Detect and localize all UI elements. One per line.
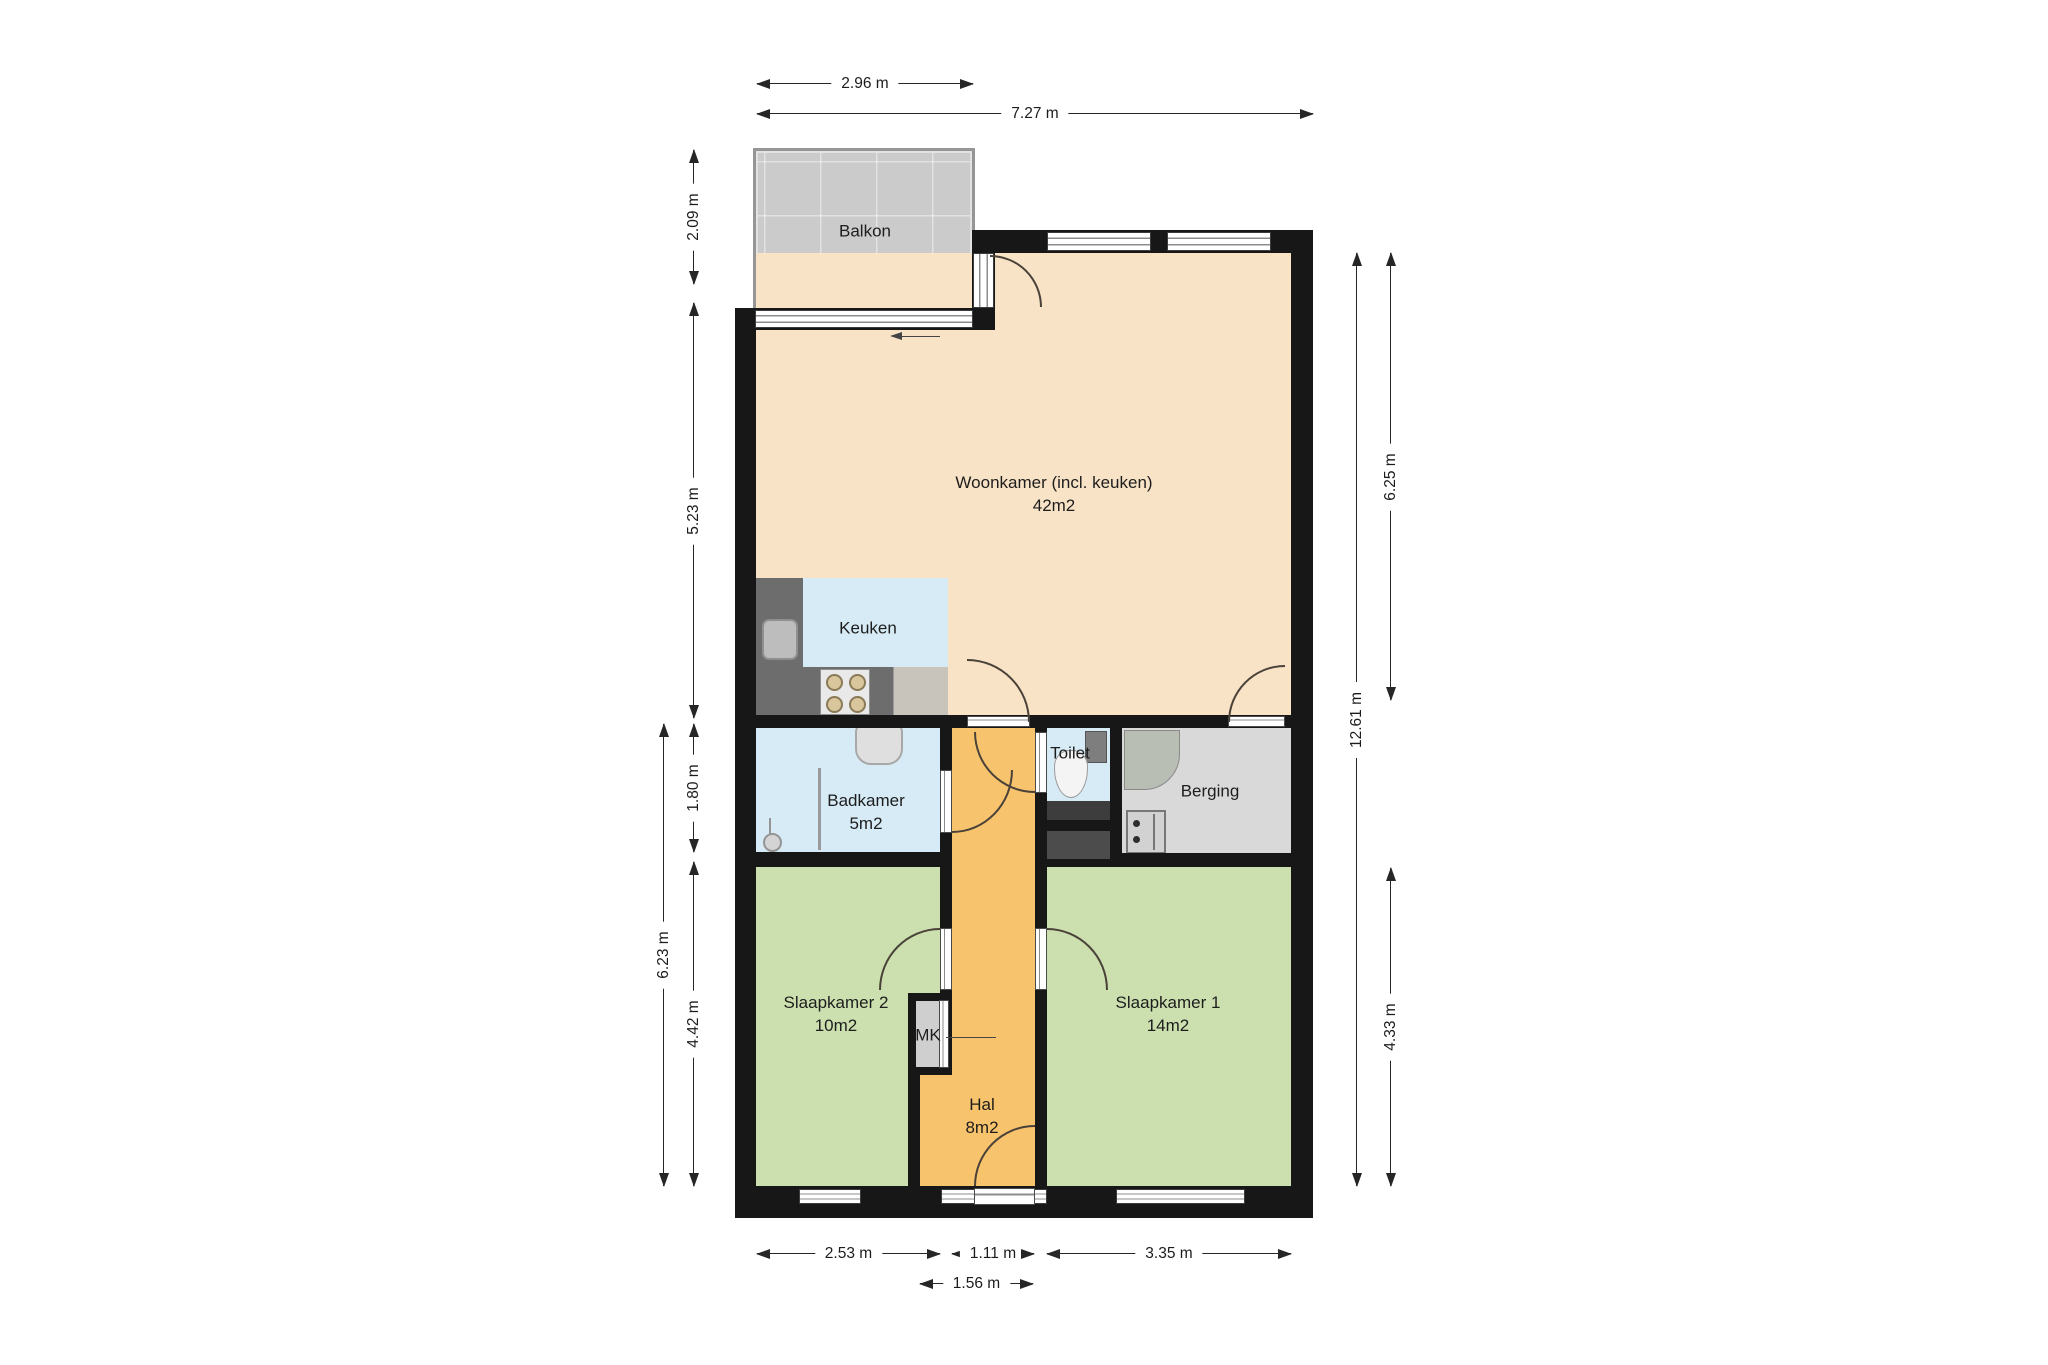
door-slaapkamer1 (1035, 928, 1047, 990)
label-slaapkamer1: Slaapkamer 114m2 (1116, 991, 1221, 1037)
dim-left-badkamer: 1.80 m (693, 724, 694, 852)
dim-bottom-slaapkamer1: 3.35 m (1047, 1253, 1291, 1254)
window-bottom-bedroom1 (1117, 1190, 1244, 1203)
stove-burner (826, 674, 843, 691)
window-top-1 (1048, 233, 1150, 250)
wall-hal-west-mid (940, 867, 952, 928)
shower-hose (769, 818, 771, 834)
toilet-vanity (1047, 801, 1110, 820)
wall-bedroom2-hal (908, 1075, 920, 1186)
dim-bottom-slaapkamer2: 2.53 m (757, 1253, 940, 1254)
sliding-door-arrowhead (890, 332, 902, 340)
washing-machine (1126, 810, 1166, 854)
label-balkon: Balkon (839, 220, 891, 243)
wall-left (735, 308, 756, 1218)
dim-right-slaapkamer1: 4.33 m (1390, 868, 1391, 1186)
washing-machine-knob (1133, 820, 1140, 827)
label-hal: Hal8m2 (965, 1093, 998, 1139)
dim-right-total-height: 12.61 m (1356, 253, 1357, 1186)
shower-screen (818, 768, 821, 850)
stove-burner (849, 696, 866, 713)
dim-left-lower-total: 6.23 m (663, 724, 664, 1186)
bathroom-washbasin (855, 723, 903, 765)
door-badkamer (940, 770, 952, 833)
label-badkamer: Badkamer5m2 (827, 789, 904, 835)
floor-plan: 2.96 m 7.27 m 2.09 m 5.23 m 1.80 m 6.23 … (0, 0, 2048, 1365)
dim-bottom-entry: 1.56 m (920, 1283, 1033, 1284)
kitchen-sink (762, 619, 798, 660)
label-mk: MK (915, 1024, 941, 1047)
mk-leader-line (946, 1037, 996, 1038)
washing-machine-knob (1133, 836, 1140, 843)
dim-bottom-hal: 1.11 m (952, 1253, 1034, 1254)
wall-hal-east-mid (1035, 867, 1047, 928)
duct-shaft (1047, 831, 1110, 859)
label-slaapkamer2: Slaapkamer 210m2 (784, 991, 889, 1037)
label-berging: Berging (1181, 780, 1240, 803)
wall-right (1291, 230, 1313, 1218)
label-toilet: Toilet (1050, 742, 1090, 765)
wall-badkamer-south (735, 852, 952, 867)
kitchen-counter-light (893, 667, 948, 715)
room-hal-recess-overlay (920, 1075, 940, 1186)
label-keuken: Keuken (839, 617, 897, 640)
window-top-2 (1168, 233, 1270, 250)
stove-burner (849, 674, 866, 691)
wall-hal-east-lower (1035, 995, 1047, 1186)
dim-left-slaapkamer2: 4.42 m (693, 862, 694, 1186)
label-woonkamer: Woonkamer (incl. keuken)42m2 (955, 471, 1152, 517)
window-bottom-bedroom2 (800, 1190, 860, 1203)
dim-balcony-width: 2.96 m (757, 83, 973, 84)
sliding-door-arrow (896, 336, 940, 337)
door-slaapkamer2 (940, 928, 952, 990)
front-door (974, 1188, 1035, 1205)
dim-balcony-depth: 2.09 m (693, 150, 694, 284)
washing-machine-door-line (1153, 814, 1155, 850)
stove-burner (826, 696, 843, 713)
dim-left-woonkamer: 5.23 m (693, 303, 694, 718)
dim-right-woonkamer: 6.25 m (1390, 253, 1391, 700)
wall-toilet-berging (1110, 715, 1122, 853)
door-toilet (1035, 732, 1047, 793)
shower-head (763, 833, 782, 852)
balcony-sliding-door (756, 311, 972, 327)
dim-total-width: 7.27 m (757, 113, 1313, 114)
